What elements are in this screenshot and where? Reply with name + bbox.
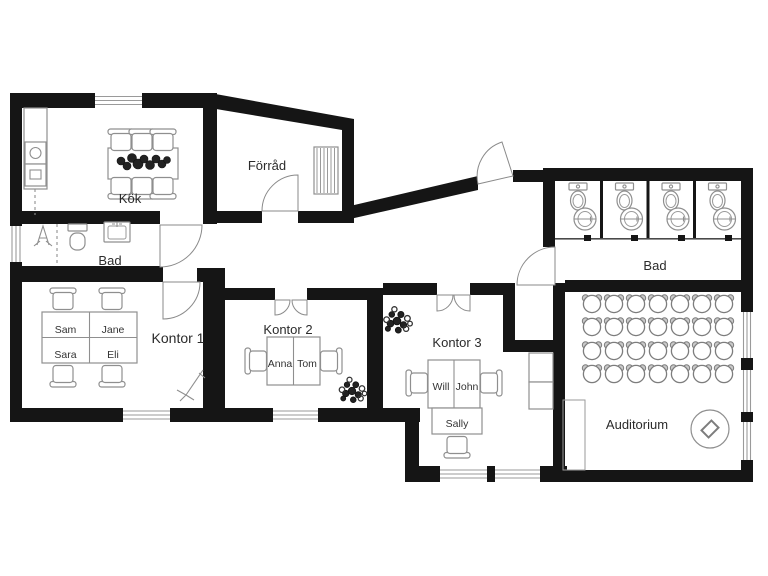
desk-chair — [50, 366, 76, 388]
toilet-icon — [68, 224, 87, 250]
sink-icon — [104, 222, 130, 242]
easel-stand-icon — [177, 370, 205, 401]
drying-rack-icon — [34, 226, 52, 246]
desk-chair — [406, 370, 428, 396]
desk-chair — [481, 370, 503, 396]
desk-chair — [245, 348, 267, 374]
desk-label: Sally — [446, 418, 470, 430]
window-auditorium-right-2 — [741, 370, 753, 412]
door-kontor3-left — [437, 295, 453, 311]
desk-chair — [99, 366, 125, 388]
desk-chair — [444, 437, 470, 459]
room-label-bad-left: Bad — [98, 253, 121, 268]
desk-label: Will — [433, 381, 450, 393]
door-bad-left — [160, 225, 202, 267]
sink-icon — [621, 208, 643, 230]
window-kontor3-bottom-1 — [440, 466, 487, 482]
window-kontor2-bottom — [273, 408, 318, 422]
sink-icon — [714, 208, 736, 230]
window-kitchen-top — [95, 93, 142, 108]
room-kok: Kök — [24, 108, 178, 215]
door-kontor3-right — [454, 295, 470, 311]
room-label-kontor3: Kontor 3 — [432, 335, 481, 350]
desk-chair — [50, 288, 76, 310]
desk-label: Jane — [102, 324, 125, 336]
window-kontor3-bottom-2 — [495, 466, 540, 482]
dining-chair — [150, 129, 176, 151]
toilet-icon — [569, 183, 587, 210]
door-forrad — [262, 175, 298, 211]
stove-icon — [25, 142, 46, 164]
desk-label: John — [456, 381, 479, 393]
floor-plan-canvas: Kök Förråd Bad Sam — [0, 0, 768, 576]
room-label-bad-right: Bad — [643, 258, 666, 273]
desk-chair — [99, 288, 125, 310]
stage-alcove — [563, 400, 585, 470]
window-left-bad — [10, 226, 22, 262]
desk-chair — [321, 348, 343, 374]
cabinet-icon — [529, 353, 553, 409]
desk-label: Tom — [297, 358, 317, 370]
room-bad-left: Bad — [34, 222, 130, 268]
auditorium-seating — [582, 295, 733, 383]
window-auditorium-right-1 — [741, 312, 753, 358]
desk-label: Sara — [54, 349, 76, 361]
room-kontor2: Anna Tom Kontor 2 — [245, 322, 367, 403]
window-auditorium-right-3 — [741, 422, 753, 460]
room-label-forrad: Förråd — [248, 158, 286, 173]
plant-icon — [384, 307, 413, 333]
dining-chair — [150, 178, 176, 200]
door-kontor2-right — [292, 300, 307, 315]
room-label-kontor2: Kontor 2 — [263, 322, 312, 337]
desk-label: Sam — [55, 324, 77, 336]
door-kontor2-left — [275, 300, 290, 315]
room-label-kontor1: Kontor 1 — [152, 330, 205, 346]
sink-icon — [574, 208, 596, 230]
plant-icon — [339, 377, 367, 402]
toilet-icon — [616, 183, 634, 210]
door-kontor1 — [163, 282, 200, 319]
room-bad-right: Bad — [555, 181, 741, 273]
sink-icon — [667, 208, 689, 230]
room-auditorium: Auditorium — [563, 295, 734, 470]
door-corridor — [477, 142, 513, 184]
toilet-icon — [709, 183, 727, 210]
room-label-kok: Kök — [119, 191, 142, 206]
desk-label: Eli — [107, 349, 119, 361]
radiator-icon — [314, 147, 338, 194]
round-table — [691, 410, 729, 448]
desk-label: Anna — [268, 358, 293, 370]
window-kontor1-bottom — [123, 408, 170, 422]
toilet-icon — [662, 183, 680, 210]
floor-plan-page: Kök Förråd Bad Sam — [0, 0, 768, 576]
room-label-auditorium: Auditorium — [606, 417, 668, 432]
door-bad-right — [517, 247, 555, 285]
sink-counter-icon — [25, 164, 46, 186]
